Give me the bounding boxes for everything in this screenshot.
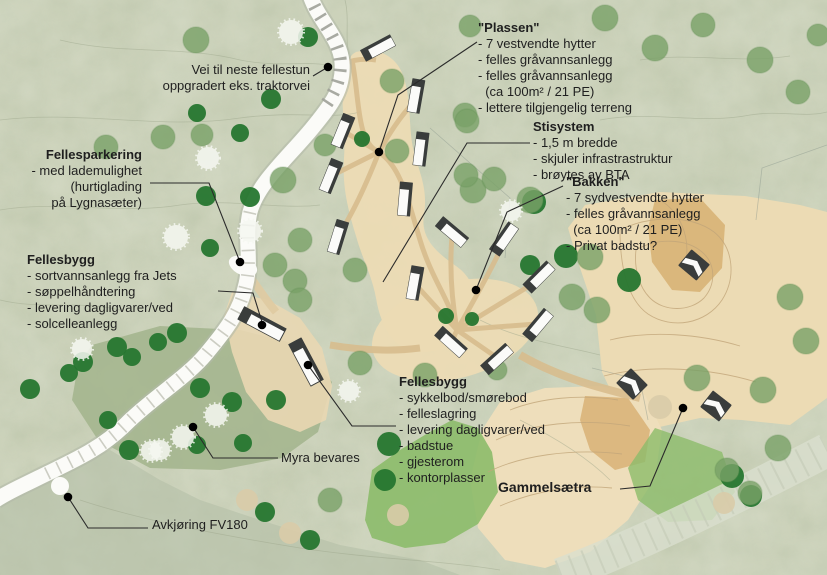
tree-symbol bbox=[584, 297, 610, 323]
leader-dot bbox=[304, 361, 313, 370]
tree-symbol bbox=[348, 351, 372, 375]
tree-symbol bbox=[279, 522, 301, 544]
tree-symbol bbox=[288, 228, 312, 252]
tree-symbol bbox=[197, 147, 219, 169]
tree-symbol bbox=[196, 186, 216, 206]
tree-symbol bbox=[240, 187, 260, 207]
tree-symbol bbox=[72, 339, 92, 359]
leader-dot bbox=[64, 493, 73, 502]
tree-symbol bbox=[793, 328, 819, 354]
tree-symbol bbox=[747, 47, 773, 73]
tree-symbol bbox=[149, 333, 167, 351]
tree-symbol bbox=[385, 139, 409, 163]
tree-symbol bbox=[266, 390, 286, 410]
tree-symbol bbox=[765, 435, 791, 461]
tree-symbol bbox=[279, 20, 303, 44]
leader-dot bbox=[375, 148, 384, 157]
tree-symbol bbox=[455, 109, 479, 133]
tree-symbol bbox=[255, 502, 275, 522]
tree-symbol bbox=[387, 504, 409, 526]
tree-symbol bbox=[377, 432, 401, 456]
tree-symbol bbox=[190, 378, 210, 398]
tree-symbol bbox=[454, 163, 478, 187]
tree-symbol bbox=[648, 395, 672, 419]
tree-symbol bbox=[738, 481, 762, 505]
tree-symbol bbox=[231, 124, 249, 142]
tree-symbol bbox=[300, 530, 320, 550]
tree-symbol bbox=[517, 187, 543, 213]
leader-dot bbox=[472, 286, 481, 295]
tree-symbol bbox=[234, 434, 252, 452]
tree-symbol bbox=[183, 27, 209, 53]
leader-dot bbox=[324, 63, 333, 72]
tree-symbol bbox=[94, 135, 118, 159]
tree-symbol bbox=[642, 35, 668, 61]
tree-symbol bbox=[236, 489, 258, 511]
tree-symbol bbox=[141, 441, 161, 461]
site-plan: Vei til neste fellestunoppgradert eks. t… bbox=[0, 0, 827, 575]
tree-symbol bbox=[554, 244, 578, 268]
map-canvas bbox=[0, 0, 827, 575]
tree-symbol bbox=[318, 488, 342, 512]
leader-dot bbox=[189, 423, 198, 432]
tree-symbol bbox=[807, 24, 827, 46]
tree-symbol bbox=[715, 458, 739, 482]
tree-symbol bbox=[577, 244, 603, 270]
tree-symbol bbox=[343, 258, 367, 282]
tree-symbol bbox=[288, 288, 312, 312]
tree-symbol bbox=[60, 364, 78, 382]
tree-symbol bbox=[501, 201, 521, 221]
tree-symbol bbox=[438, 308, 454, 324]
tree-symbol bbox=[191, 124, 213, 146]
tree-symbol bbox=[482, 167, 506, 191]
tree-symbol bbox=[691, 13, 715, 37]
tree-symbol bbox=[263, 253, 287, 277]
tree-symbol bbox=[201, 239, 219, 257]
tree-symbol bbox=[99, 411, 117, 429]
tree-symbol bbox=[559, 284, 585, 310]
leader-dot bbox=[236, 258, 245, 267]
tree-symbol bbox=[684, 365, 710, 391]
tree-symbol bbox=[205, 404, 227, 426]
tree-symbol bbox=[354, 131, 370, 147]
tree-symbol bbox=[119, 440, 139, 460]
tree-symbol bbox=[777, 284, 803, 310]
tree-symbol bbox=[380, 69, 404, 93]
tree-symbol bbox=[786, 80, 810, 104]
tree-symbol bbox=[750, 377, 776, 403]
tree-symbol bbox=[123, 348, 141, 366]
tree-symbol bbox=[20, 379, 40, 399]
leader-dot bbox=[679, 404, 688, 413]
tree-symbol bbox=[374, 469, 396, 491]
tree-symbol bbox=[617, 268, 641, 292]
tree-symbol bbox=[261, 89, 281, 109]
tree-symbol bbox=[465, 312, 479, 326]
tree-symbol bbox=[459, 15, 481, 37]
tree-symbol bbox=[270, 167, 296, 193]
tree-symbol bbox=[164, 225, 188, 249]
tree-symbol bbox=[188, 104, 206, 122]
tree-symbol bbox=[339, 381, 359, 401]
tree-symbol bbox=[151, 125, 175, 149]
tree-symbol bbox=[713, 492, 735, 514]
tree-symbol bbox=[239, 220, 261, 242]
tree-symbol bbox=[413, 363, 437, 387]
leader-dot bbox=[258, 321, 267, 330]
tree-symbol bbox=[592, 5, 618, 31]
tree-symbol bbox=[167, 323, 187, 343]
